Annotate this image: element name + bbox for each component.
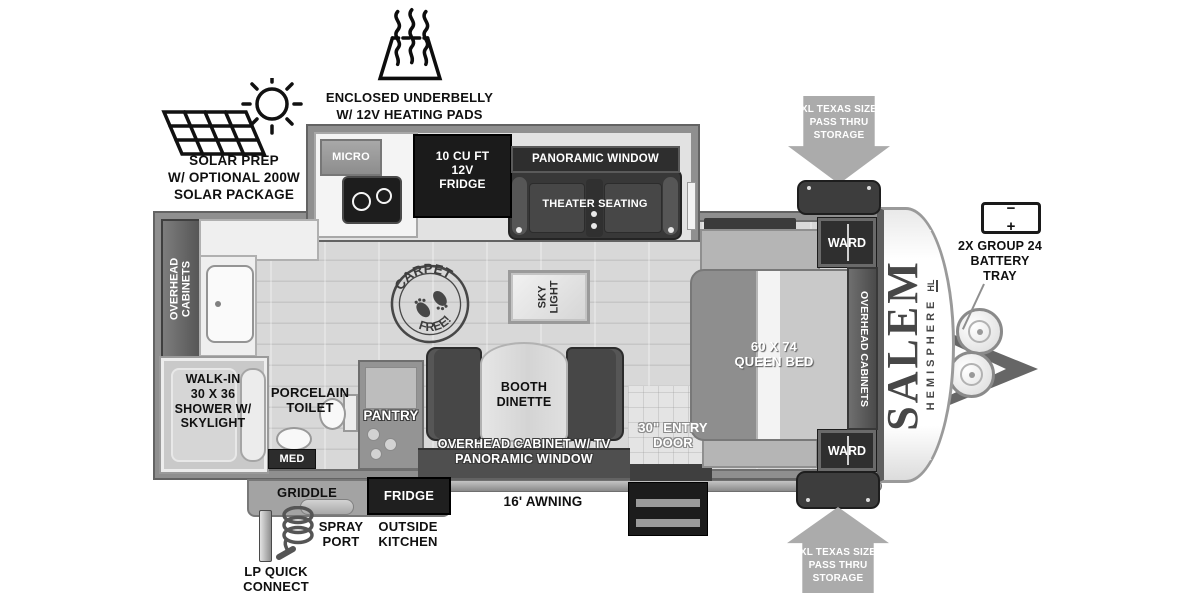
pantry-label: PANTRY xyxy=(354,408,428,424)
bedroom-overhead-cabinets: OVERHEAD CABINETS xyxy=(847,267,878,430)
cupholder-icon xyxy=(591,211,597,217)
propane-tank xyxy=(948,351,995,398)
faucet-icon xyxy=(215,301,221,307)
outside-fridge-label: FRIDGE xyxy=(384,488,434,503)
step-tread xyxy=(636,519,700,527)
dinette-bench xyxy=(426,347,482,441)
queen-bed-label: 60 X 74 QUEEN BED xyxy=(692,339,856,370)
pass-thru-top-label: XL TEXAS SIZE PASS THRU STORAGE xyxy=(788,103,890,142)
pantry-item xyxy=(384,438,397,451)
wardrobe-bottom: WARD xyxy=(818,430,876,471)
griddle-label: GRIDDLE xyxy=(252,485,362,500)
shower-label: WALK-IN 30 X 36 SHOWER W/ SKYLIGHT xyxy=(156,372,270,431)
salem-logo-text: SALEM xyxy=(881,205,925,485)
dinette-label: BOOTH DINETTE xyxy=(482,380,566,410)
skylight: SKY LIGHT xyxy=(508,270,590,324)
wardrobe-bottom-label: WARD xyxy=(819,444,875,458)
lp-quick-connect-label: LP QUICK CONNECT xyxy=(216,564,336,595)
pass-thru-arrow-bottom: XL TEXAS SIZE PASS THRU STORAGE xyxy=(787,507,889,593)
entry-door-opening xyxy=(630,464,712,481)
dinette-wall-label: OVERHEAD CABINET W/ TV PANORAMIC WINDOW xyxy=(413,437,635,467)
pantry-item xyxy=(367,428,380,441)
wardrobe-top: WARD xyxy=(818,218,876,267)
outside-kitchen-label: OUTSIDE KITCHEN xyxy=(368,519,448,550)
bedroom-overhead-cabinets-label: OVERHEAD CABINETS xyxy=(857,270,869,428)
latch-dot xyxy=(806,498,810,502)
outside-fridge: FRIDGE xyxy=(367,477,451,515)
awning-label: 16' AWNING xyxy=(478,494,608,510)
lp-quick-connect-post xyxy=(259,510,272,562)
cooktop xyxy=(342,176,402,224)
brand-logo: SALEM HEMISPHERE HL xyxy=(881,205,951,485)
kitchen-fridge: 10 CU FT 12V FRIDGE xyxy=(413,134,512,218)
bath-tub xyxy=(206,265,254,343)
panoramic-window-label: PANORAMIC WINDOW xyxy=(532,153,659,167)
pass-thru-door-top xyxy=(797,180,881,215)
entry-steps xyxy=(628,482,708,536)
pantry-item xyxy=(370,448,382,460)
step-tread xyxy=(636,499,700,507)
pass-thru-arrow-top: XL TEXAS SIZE PASS THRU STORAGE xyxy=(788,96,890,184)
kitchen-fridge-label: 10 CU FT 12V FRIDGE xyxy=(415,149,510,191)
battery-icon: − + xyxy=(981,202,1041,234)
bathroom-overhead-cabinets-label: OVERHEAD CABINETS xyxy=(169,223,194,355)
dinette-table: BOOTH DINETTE xyxy=(480,342,568,442)
skylight-label: SKY LIGHT xyxy=(537,273,562,321)
spray-port-label: SPRAY PORT xyxy=(306,519,376,550)
cupholder-icon xyxy=(668,227,674,233)
latch-dot xyxy=(867,186,871,190)
med-cabinet-label: MED xyxy=(279,453,304,466)
battery-label: 2X GROUP 24 BATTERY TRAY xyxy=(948,239,1052,283)
entry-door-label: 30" ENTRY DOOR xyxy=(624,420,722,451)
dinette-bench xyxy=(566,347,624,441)
med-cabinet: MED xyxy=(268,449,316,469)
toilet-label: PORCELAIN TOILET xyxy=(260,385,360,416)
pantry-shelf xyxy=(365,367,417,409)
cupholder-icon xyxy=(591,223,597,229)
burner-icon xyxy=(376,188,392,204)
latch-dot xyxy=(866,498,870,502)
queen-bed: 60 X 74 QUEEN BED xyxy=(690,269,858,441)
battery-terminals: − + xyxy=(984,200,1038,235)
propane-tank xyxy=(956,308,1003,355)
underbelly-label: ENCLOSED UNDERBELLY W/ 12V HEATING PADS xyxy=(292,90,527,124)
panoramic-window-header: PANORAMIC WINDOW xyxy=(511,146,680,173)
carpet-free-stamp: CARPET FREE! xyxy=(388,262,472,346)
med-sink xyxy=(276,427,312,451)
theater-seating-label: THEATER SEATING xyxy=(508,198,682,211)
wardrobe-top-label: WARD xyxy=(819,236,875,250)
burner-icon xyxy=(352,192,371,211)
slide-side-window xyxy=(687,182,696,230)
cupholder-icon xyxy=(516,227,522,233)
hemisphere-logo-text: HEMISPHERE xyxy=(925,298,937,411)
trim-logo-text: HL xyxy=(926,280,938,292)
pass-thru-door-bottom xyxy=(796,471,880,509)
pass-thru-bottom-label: XL TEXAS SIZE PASS THRU STORAGE xyxy=(787,546,889,585)
latch-dot xyxy=(807,186,811,190)
bathroom-overhead-cabinets: OVERHEAD CABINETS xyxy=(161,219,201,359)
heating-pads-icon xyxy=(366,6,454,84)
floorplan: MICRO 10 CU FT 12V FRIDGE PANORAMIC WIND… xyxy=(0,0,1200,600)
solar-label: SOLAR PREP W/ OPTIONAL 200W SOLAR PACKAG… xyxy=(128,153,340,204)
